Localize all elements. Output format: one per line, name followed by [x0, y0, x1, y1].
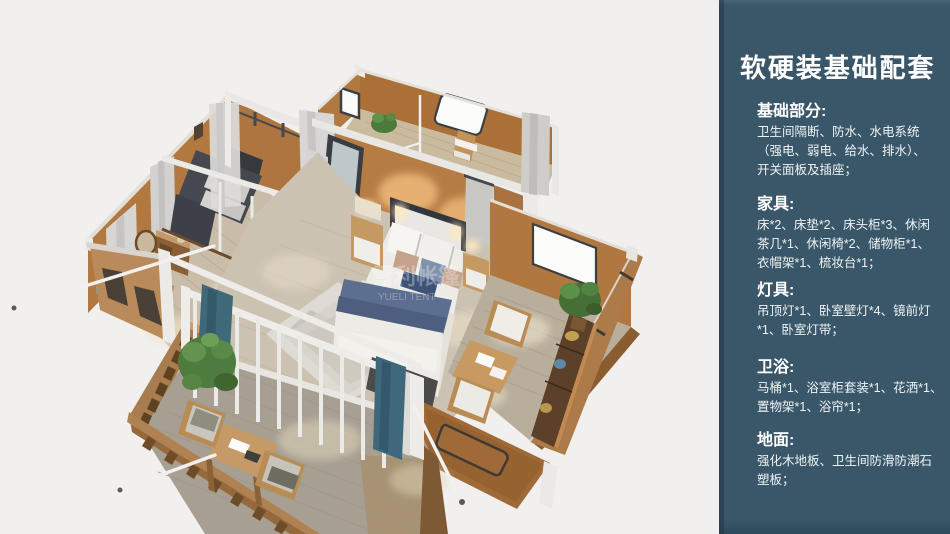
- svg-text:雪利帐篷: 雪利帐篷: [372, 264, 460, 289]
- svg-text:YUELI TENT: YUELI TENT: [378, 292, 436, 303]
